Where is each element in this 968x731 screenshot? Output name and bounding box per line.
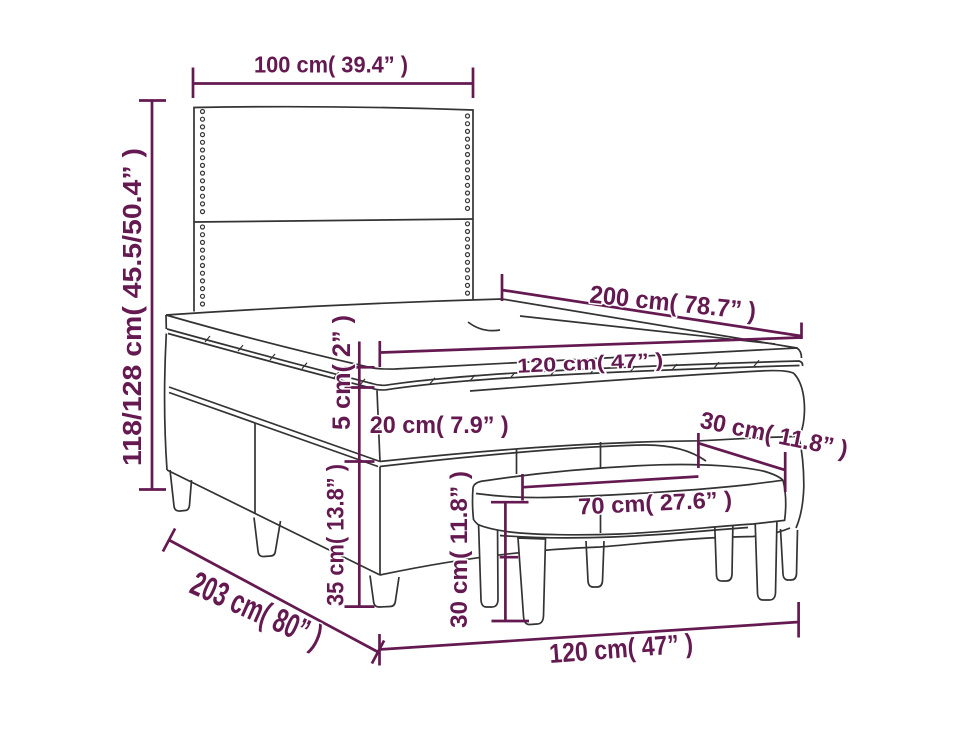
svg-text:30 cm( 11.8” ): 30 cm( 11.8” ): [446, 471, 473, 628]
svg-text:35 cm( 13.8” ): 35 cm( 13.8” ): [323, 464, 350, 606]
svg-text:100 cm( 39.4” ): 100 cm( 39.4” ): [254, 52, 408, 78]
svg-text:5 cm( 2” ): 5 cm( 2” ): [328, 315, 356, 430]
svg-text:20 cm( 7.9” ): 20 cm( 7.9” ): [370, 412, 509, 439]
svg-text:118/128 cm( 45.5/50.4” ): 118/128 cm( 45.5/50.4” ): [119, 148, 147, 466]
